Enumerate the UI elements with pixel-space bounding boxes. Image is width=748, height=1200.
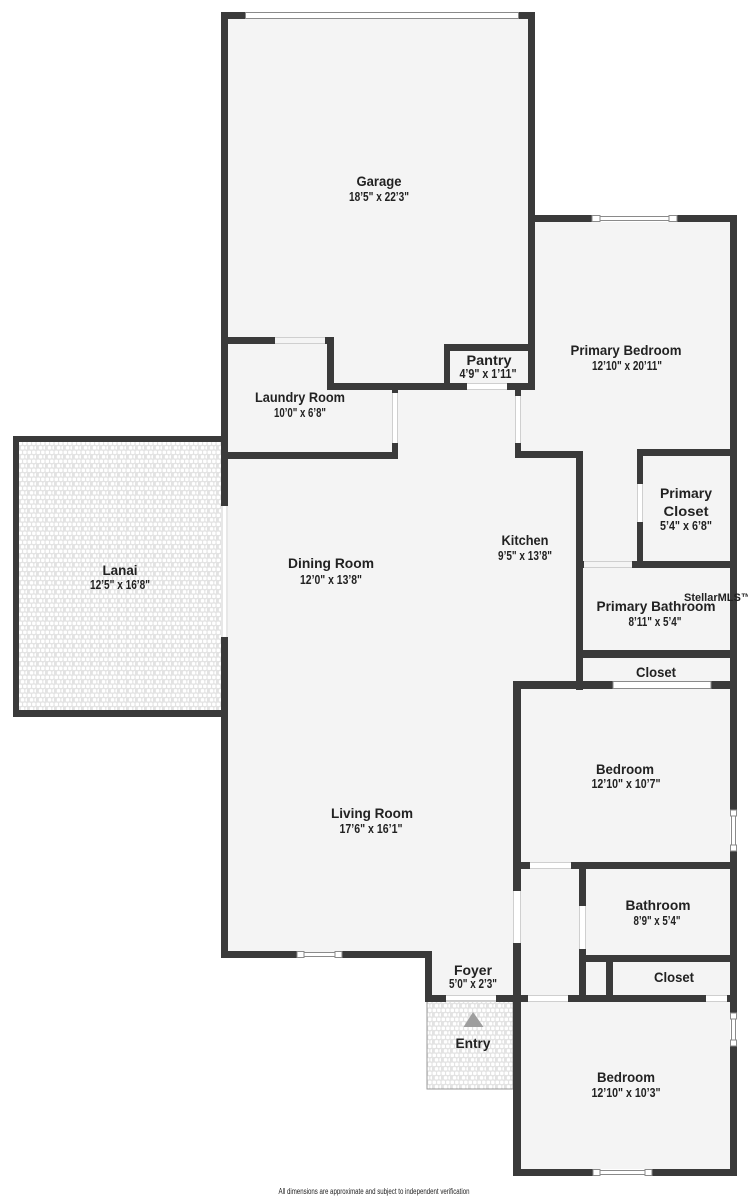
svg-text:Lanai: Lanai — [103, 562, 138, 578]
svg-text:Bathroom: Bathroom — [626, 897, 691, 913]
svg-text:Living Room: Living Room — [331, 805, 413, 821]
svg-text:StellarMLS™: StellarMLS™ — [684, 592, 748, 604]
svg-text:5’4" x 6’8": 5’4" x 6’8" — [660, 518, 712, 533]
svg-text:Primary Bedroom: Primary Bedroom — [571, 342, 682, 358]
svg-text:Bedroom: Bedroom — [597, 1069, 655, 1085]
svg-text:Kitchen: Kitchen — [502, 532, 549, 548]
svg-text:12’10" x 10’3": 12’10" x 10’3" — [592, 1085, 661, 1100]
svg-text:All dimensions are approximate: All dimensions are approximate and subje… — [279, 1187, 470, 1196]
svg-text:Closet: Closet — [636, 664, 676, 680]
svg-text:17’6" x 16’1": 17’6" x 16’1" — [340, 821, 403, 836]
svg-text:Closet: Closet — [664, 503, 709, 519]
svg-text:Laundry Room: Laundry Room — [255, 389, 345, 405]
svg-text:Bedroom: Bedroom — [596, 761, 654, 777]
svg-text:5’0" x 2’3": 5’0" x 2’3" — [449, 976, 497, 991]
svg-text:Primary: Primary — [660, 485, 712, 501]
svg-text:12’0" x 13’8": 12’0" x 13’8" — [300, 572, 362, 587]
svg-text:Closet: Closet — [654, 969, 694, 985]
svg-text:Garage: Garage — [357, 173, 402, 189]
svg-text:12’5" x 16’8": 12’5" x 16’8" — [90, 577, 150, 592]
svg-text:12’10" x 20’11": 12’10" x 20’11" — [592, 358, 662, 373]
svg-text:9’5" x 13’8": 9’5" x 13’8" — [498, 548, 552, 563]
svg-text:Dining Room: Dining Room — [288, 555, 374, 571]
svg-text:4’9" x 1’11": 4’9" x 1’11" — [460, 366, 517, 381]
svg-text:8’11" x 5’4": 8’11" x 5’4" — [629, 614, 682, 629]
svg-text:10’0" x 6’8": 10’0" x 6’8" — [274, 405, 326, 420]
svg-text:12’10" x 10’7": 12’10" x 10’7" — [592, 776, 661, 791]
svg-text:18’5" x 22’3": 18’5" x 22’3" — [349, 189, 409, 204]
svg-text:8’9" x 5’4": 8’9" x 5’4" — [634, 913, 681, 928]
svg-text:Entry: Entry — [456, 1035, 491, 1051]
